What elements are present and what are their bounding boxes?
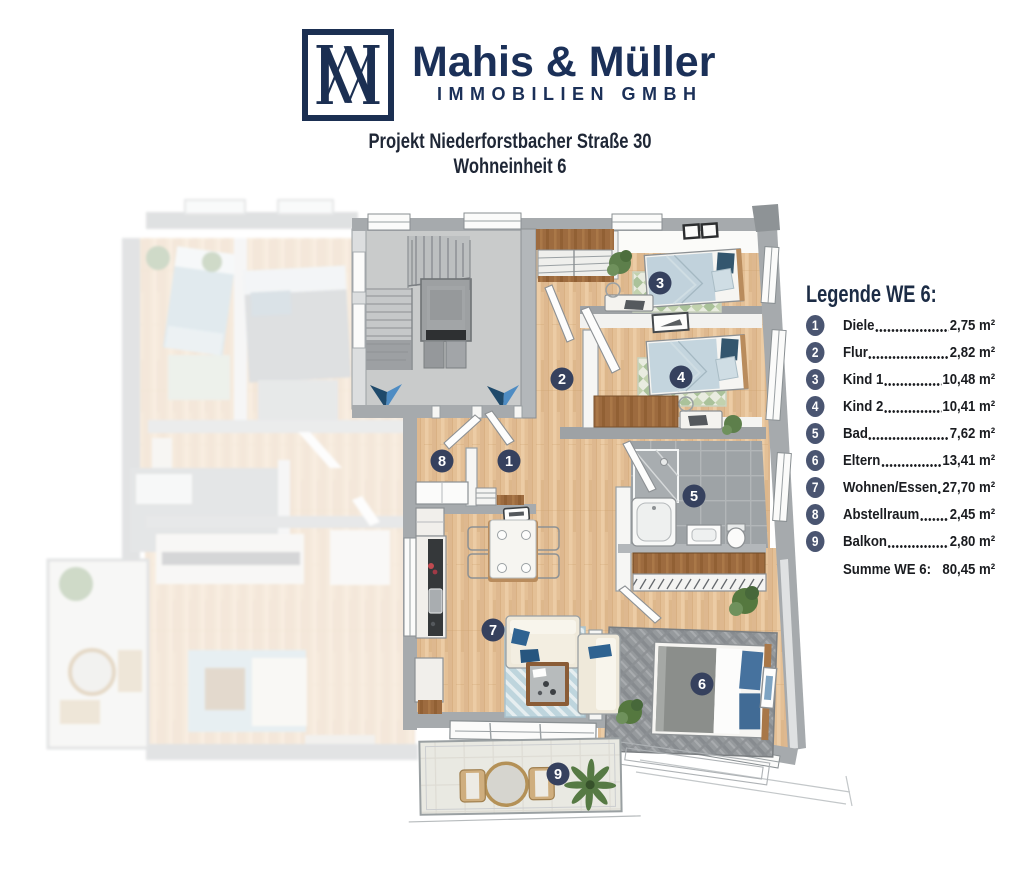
svg-text:5: 5 bbox=[690, 489, 698, 505]
svg-text:3: 3 bbox=[656, 276, 664, 292]
svg-text:6: 6 bbox=[698, 677, 706, 693]
svg-text:1: 1 bbox=[505, 454, 513, 470]
svg-text:2: 2 bbox=[558, 372, 566, 388]
svg-text:9: 9 bbox=[554, 767, 562, 783]
svg-text:7: 7 bbox=[489, 623, 497, 639]
svg-text:4: 4 bbox=[677, 370, 685, 386]
svg-text:8: 8 bbox=[438, 454, 446, 470]
